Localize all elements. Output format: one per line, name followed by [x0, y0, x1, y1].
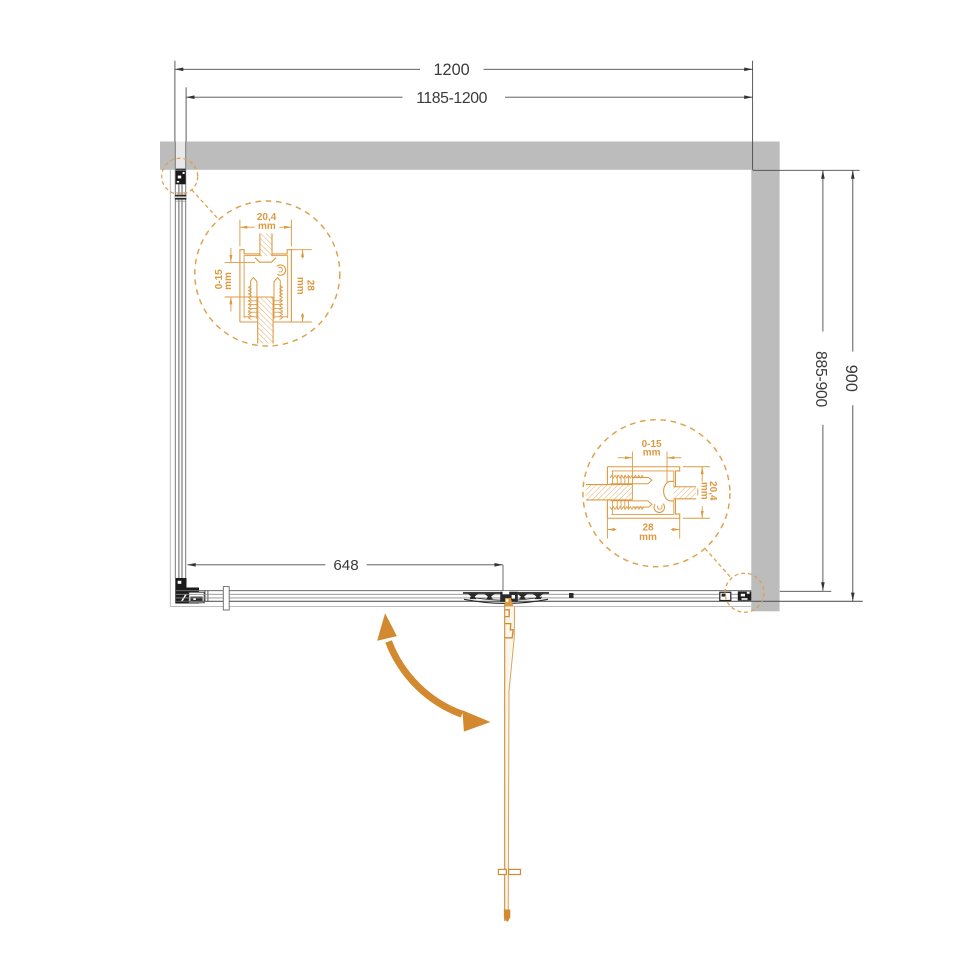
svg-text:mm: mm [223, 272, 234, 290]
svg-text:1185-1200: 1185-1200 [416, 90, 487, 107]
svg-text:mm: mm [639, 532, 657, 543]
svg-text:885-900: 885-900 [812, 351, 829, 407]
svg-text:1200: 1200 [433, 61, 469, 79]
svg-text:648: 648 [333, 557, 358, 574]
svg-text:900: 900 [842, 365, 860, 392]
svg-text:mm: mm [698, 482, 709, 500]
svg-text:mm: mm [258, 221, 276, 232]
svg-text:mm: mm [294, 277, 305, 295]
svg-text:mm: mm [643, 448, 661, 459]
